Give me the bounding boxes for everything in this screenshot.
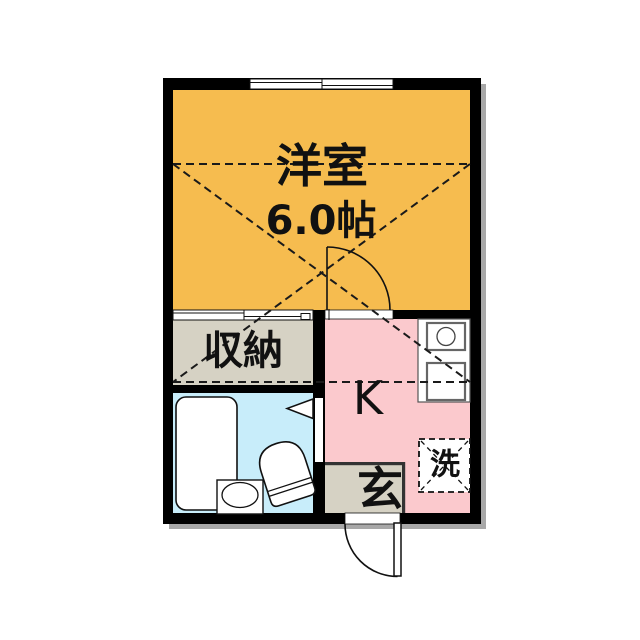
- window-sliding: [250, 79, 393, 89]
- closet-label: 収納: [203, 328, 283, 374]
- kitchen-label: K: [353, 371, 385, 425]
- floorplan-canvas: 洋室 6.0帖 収納 K 玄 洗: [0, 0, 640, 640]
- floorplan-drawing: 洋室 6.0帖 収納 K 玄 洗: [0, 0, 640, 640]
- laundry-label: 洗: [430, 448, 460, 483]
- shadow-bottom: [169, 524, 486, 529]
- shadow-right: [481, 84, 486, 529]
- kitchen-counter: [418, 319, 470, 402]
- entrance-door: [345, 523, 401, 577]
- wall-right: [470, 78, 481, 524]
- entrance-label: 玄: [357, 462, 403, 516]
- western-room-label: 洋室: [276, 139, 368, 193]
- western-room-size: 6.0帖: [266, 198, 377, 244]
- wall-closet-south: [173, 385, 325, 393]
- closet-sliding-door: [173, 310, 313, 320]
- sink-faucet-icon: [437, 328, 455, 346]
- bathroom-door-opening: [315, 398, 323, 462]
- wash-basin: [217, 480, 263, 514]
- wall-left: [163, 78, 173, 524]
- wall-bottom: [163, 513, 481, 524]
- closet-door-handle: [301, 314, 310, 320]
- entrance-door-arc: [345, 524, 398, 577]
- entrance-door-leaf: [394, 523, 401, 576]
